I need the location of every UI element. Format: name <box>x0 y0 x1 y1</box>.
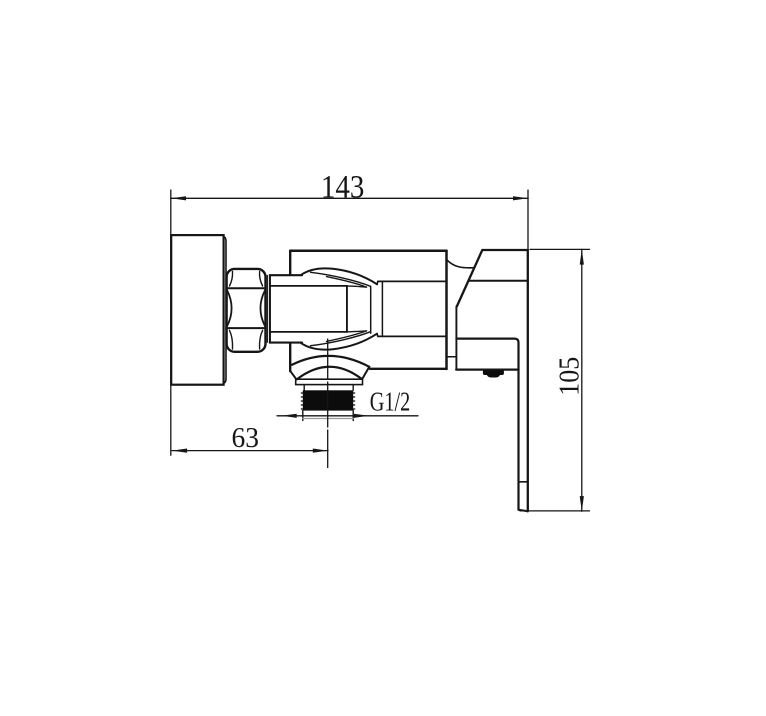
svg-text:143: 143 <box>321 170 365 206</box>
svg-text:G1/2: G1/2 <box>370 385 411 416</box>
svg-text:63: 63 <box>231 423 259 454</box>
svg-text:105: 105 <box>554 357 586 396</box>
